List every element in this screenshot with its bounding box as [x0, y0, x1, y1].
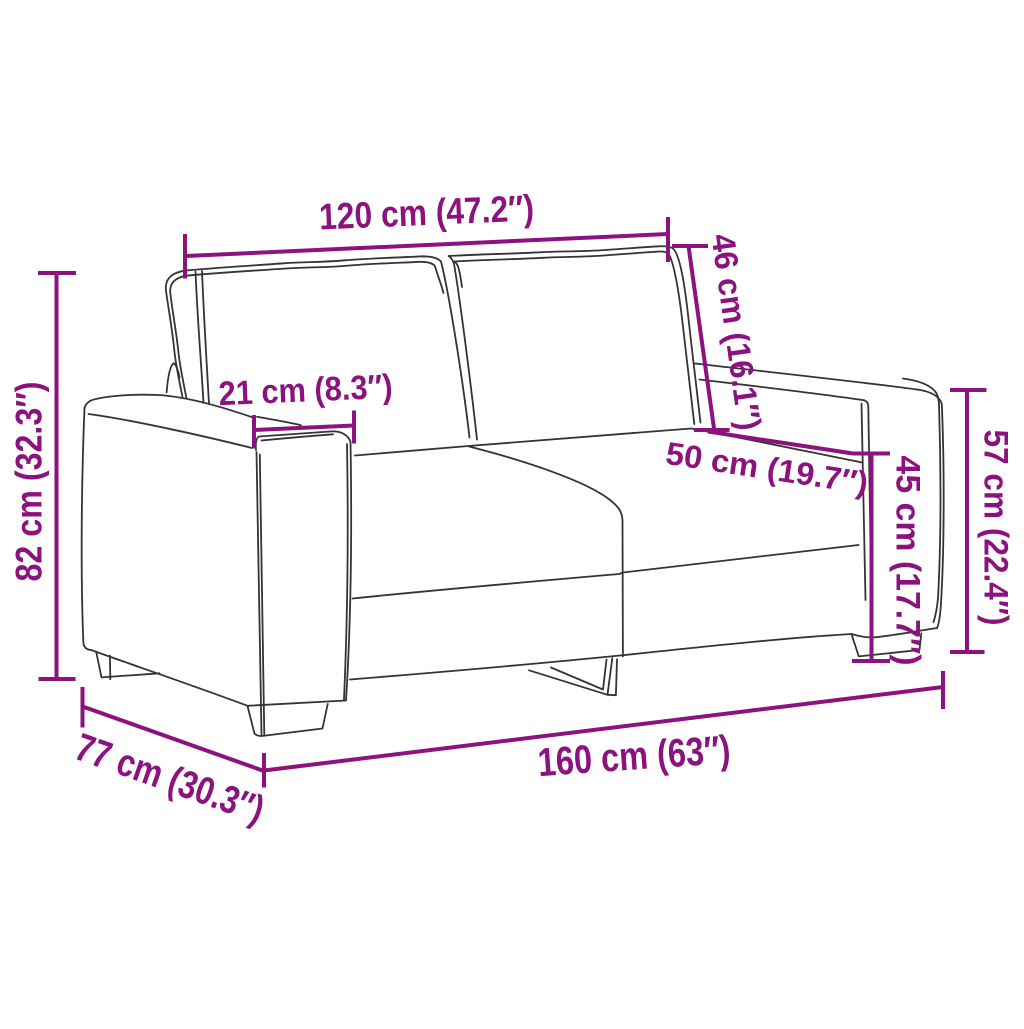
svg-text:21 cm (8.3″): 21 cm (8.3″)	[218, 368, 393, 414]
svg-text:82 cm (32.3″): 82 cm (32.3″)	[9, 382, 50, 582]
svg-text:57 cm (22.4″): 57 cm (22.4″)	[977, 430, 1015, 626]
svg-text:45 cm (17.7″): 45 cm (17.7″)	[889, 456, 927, 666]
